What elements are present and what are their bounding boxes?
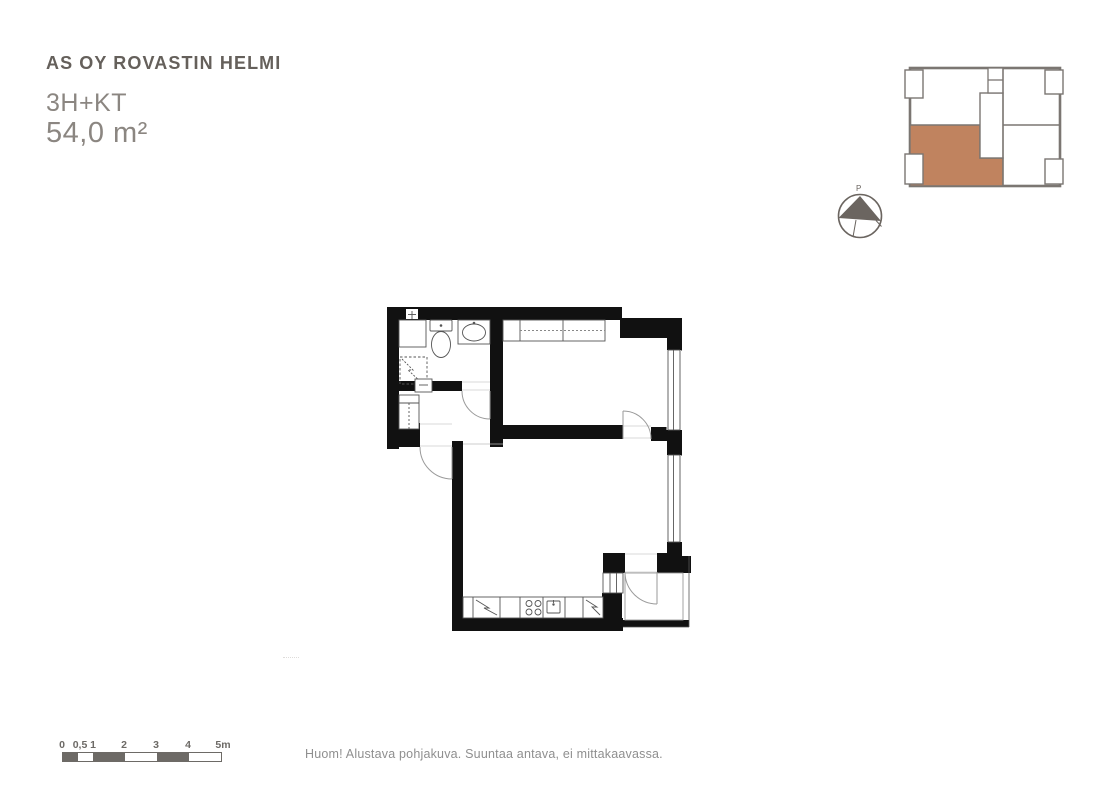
floorplan-page: AS OY ROVASTIN HELMI 3H+KT 54,0 m² P [0,0,1112,787]
scale-tick-4: 4 [185,739,191,751]
north-label: P [856,184,861,193]
washbasin [458,320,490,344]
scale-segment [157,753,189,761]
bedroom-wardrobe [503,320,605,341]
bathroom-door [462,391,490,419]
page-title: AS OY ROVASTIN HELMI [46,53,281,74]
scale-tick-2: 2 [121,739,127,751]
bedroom-door [623,411,651,439]
scale-tick-0: 0 [59,739,65,751]
floor-plan [385,303,695,635]
apartment-area-label: 54,0 m² [46,117,148,150]
stair-core [980,93,1003,158]
apartment-type-label: 3H+KT [46,89,127,118]
hall-door [420,447,452,479]
kitchen-sink-icon [547,600,560,613]
north-compass-icon: P [830,180,894,246]
bedroom-window [667,350,682,430]
print-artifact [283,657,299,659]
balcony-tab [1045,159,1063,184]
scale-tick-1: 1 [90,739,96,751]
scale-tick-5m: 5m [215,739,230,751]
key-plan-outline [905,68,1063,186]
building-key-plan [898,58,1070,190]
bathroom-fixtures [399,309,490,384]
toilet [430,320,452,358]
hall-wardrobe [399,395,419,429]
scale-bar [62,752,222,762]
balcony-tab [905,154,923,184]
scale-segment [93,753,125,761]
interior-window [603,573,623,593]
balcony-tab [1045,70,1063,94]
livingroom-window [667,455,682,542]
scale-tick-05: 0,5 [73,739,88,751]
faucet-icon [406,309,418,319]
scale-segment [63,753,78,761]
kitchen-counter [463,597,603,618]
washer-space [399,320,426,347]
hall-cabinet [415,379,432,392]
disclaimer-text: Huom! Alustava pohjakuva. Suuntaa antava… [305,747,663,761]
scale-tick-3: 3 [153,739,159,751]
balcony-tab [905,70,923,98]
